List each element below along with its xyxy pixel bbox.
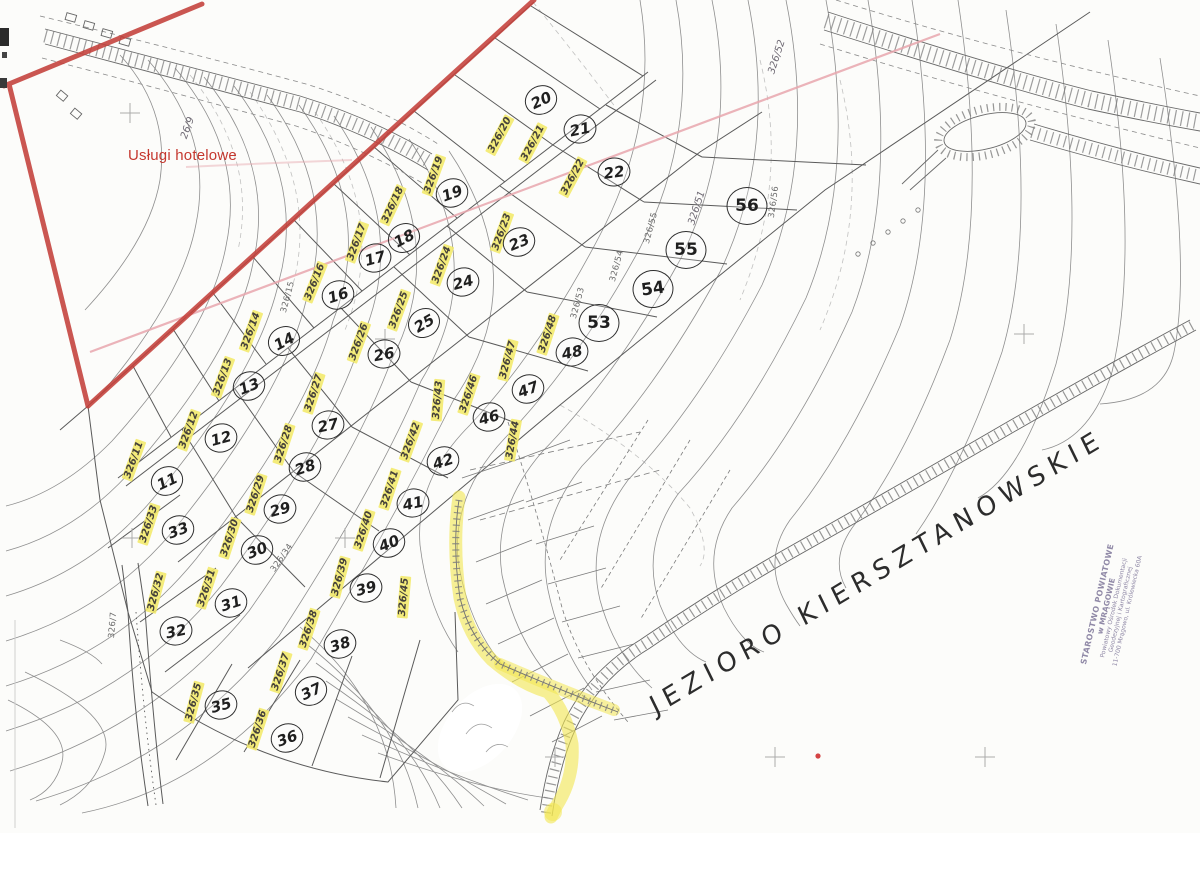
plot-number: 20 — [528, 87, 555, 112]
plot-number: 26 — [372, 343, 396, 364]
red-annotation-text: Usługi hotelowe — [128, 147, 237, 164]
plot-number: 23 — [506, 230, 532, 255]
plot-number: 27 — [316, 414, 340, 436]
plot-circle-53: 53 — [579, 304, 620, 342]
plot-number: 32 — [164, 620, 188, 642]
plot-number: 41 — [401, 492, 425, 514]
embankment-loop — [856, 98, 1037, 256]
plot-number: 22 — [602, 162, 625, 183]
plot-number: 11 — [154, 468, 181, 493]
yellow-highlight-path — [456, 497, 614, 821]
plot-number: 39 — [354, 577, 379, 600]
plot-number: 53 — [587, 313, 611, 333]
page-bottom-margin — [0, 833, 1200, 872]
plot-number: 42 — [430, 449, 455, 473]
plot-circle-56: 56 — [727, 187, 768, 225]
plot-number: 54 — [640, 277, 666, 300]
plot-number: 18 — [391, 225, 418, 251]
plot-number: 38 — [327, 632, 352, 656]
plot-number: 16 — [325, 283, 350, 307]
building-footprints — [56, 13, 130, 120]
plot-number: 56 — [735, 196, 759, 216]
plot-number: 14 — [271, 328, 298, 354]
plot-number: 31 — [218, 591, 243, 615]
red-dot-mark — [815, 753, 820, 758]
plot-number: 30 — [244, 538, 270, 563]
plot-number: 17 — [363, 247, 388, 270]
plot-number: 46 — [477, 406, 502, 429]
plot-number: 33 — [165, 518, 191, 542]
plot-number: 19 — [439, 181, 465, 205]
plot-number: 24 — [451, 271, 476, 294]
plot-number: 28 — [292, 455, 317, 479]
plot-number: 36 — [274, 726, 300, 750]
scan-artifacts — [0, 28, 15, 828]
plot-circle-55: 55 — [666, 231, 707, 269]
road-band-ne — [820, 0, 1200, 184]
plot-number: 48 — [560, 341, 584, 363]
plot-number: 29 — [268, 498, 293, 521]
plot-number: 47 — [515, 377, 541, 401]
plot-number: 37 — [298, 678, 325, 703]
pink-survey-line — [90, 34, 940, 352]
plot-number: 55 — [674, 240, 698, 260]
plot-number: 13 — [236, 374, 262, 399]
road-band-nw — [40, 16, 438, 184]
plot-number: 35 — [209, 694, 234, 717]
plot-number: 12 — [209, 427, 234, 450]
plot-number: 21 — [568, 118, 592, 140]
plot-number: 40 — [376, 531, 402, 556]
plot-number: 25 — [410, 310, 437, 336]
map-canvas: Usługi hotelowe JEZIORO KIERSZTANOWSKIE … — [0, 0, 1200, 872]
